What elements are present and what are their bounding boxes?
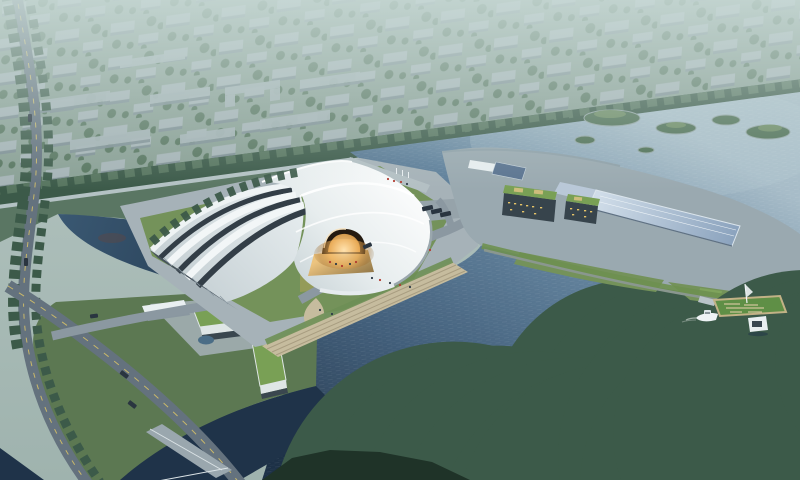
peninsula-trees xyxy=(613,218,800,480)
glass-pool xyxy=(554,182,740,246)
pier xyxy=(698,284,786,336)
bottom-shore xyxy=(262,450,800,480)
courtyard-pool xyxy=(198,336,214,345)
city-skyline xyxy=(0,0,800,480)
people xyxy=(319,178,431,315)
main-site xyxy=(120,157,800,480)
pond xyxy=(58,214,328,298)
city-trees xyxy=(295,193,800,480)
glass-slab xyxy=(492,162,526,180)
glass-facade xyxy=(150,250,238,310)
plot-trees xyxy=(280,364,800,480)
haze-overlay xyxy=(0,0,800,190)
entrance-arch xyxy=(308,229,374,276)
background-haze xyxy=(0,0,800,480)
buses-and-cars xyxy=(363,202,491,249)
flag-poles xyxy=(396,168,409,178)
pavilion-buildings xyxy=(502,185,600,224)
rendering-canvas xyxy=(0,0,800,480)
southwest-complex xyxy=(33,286,800,480)
promenade-steps xyxy=(262,262,468,357)
lake xyxy=(240,80,800,480)
aerial-rendering xyxy=(0,0,800,480)
waterfront-road xyxy=(300,213,480,300)
bridge xyxy=(146,424,232,480)
membrane-shell xyxy=(262,161,431,294)
mast-sculpture xyxy=(745,284,747,303)
boat xyxy=(682,310,718,322)
peninsula-park xyxy=(442,148,800,480)
inlet-walkway xyxy=(346,157,430,193)
road-network xyxy=(6,0,318,480)
office-building xyxy=(192,298,288,399)
entrance-glow xyxy=(314,239,374,269)
cars xyxy=(24,114,137,409)
pier-pavilion xyxy=(748,316,768,336)
main-hall-building xyxy=(150,161,431,310)
islands xyxy=(575,110,790,153)
midland-greenery xyxy=(0,88,800,256)
white-canopy xyxy=(468,160,496,172)
gate-canopy xyxy=(142,300,190,321)
site-tree-row xyxy=(152,172,300,242)
parking-lot xyxy=(406,196,512,222)
canal xyxy=(0,386,344,480)
tree-avenue xyxy=(0,82,800,208)
